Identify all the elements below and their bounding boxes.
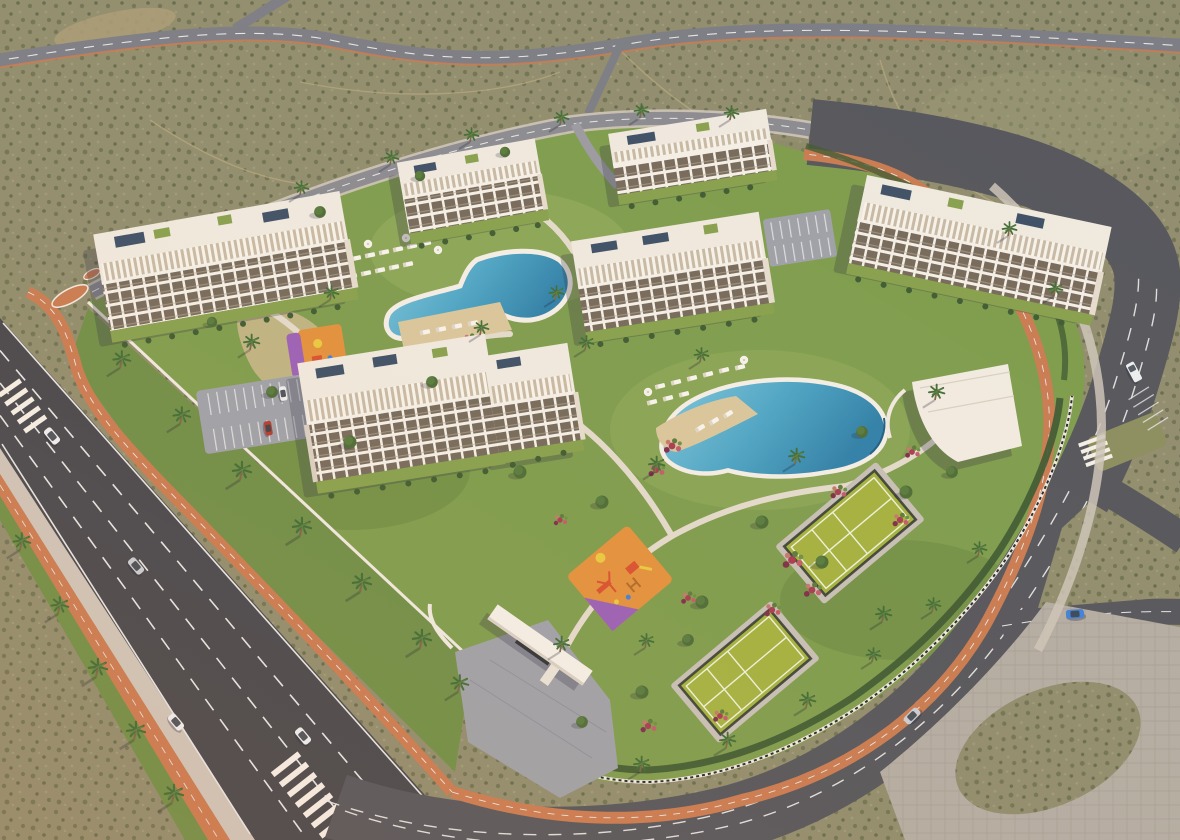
golden-hour-overlay	[0, 0, 1180, 840]
aerial-site-render	[0, 0, 1180, 840]
screenshot-canvas	[0, 0, 1180, 840]
